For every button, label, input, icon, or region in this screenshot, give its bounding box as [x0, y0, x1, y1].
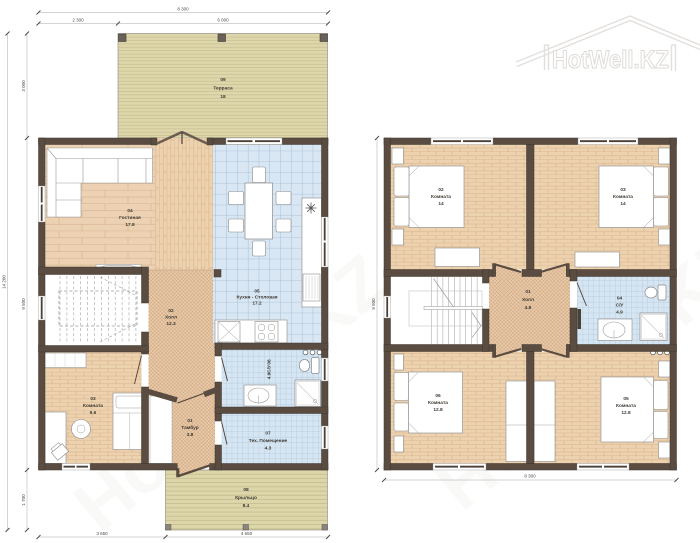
- svg-text:Комната: Комната: [83, 403, 103, 409]
- svg-text:05: 05: [623, 396, 629, 402]
- svg-text:06: 06: [435, 393, 441, 399]
- svg-text:Гостиная: Гостиная: [119, 215, 141, 221]
- svg-text:9 500: 9 500: [21, 298, 26, 310]
- svg-text:9.6: 9.6: [90, 410, 97, 416]
- svg-text:06: 06: [267, 359, 273, 365]
- svg-text:Терраса: Терраса: [213, 86, 233, 92]
- svg-text:Кухня - Столовая: Кухня - Столовая: [236, 295, 277, 301]
- svg-text:14: 14: [438, 201, 444, 207]
- svg-text:8 300: 8 300: [177, 7, 189, 12]
- svg-text:17.8: 17.8: [125, 222, 135, 228]
- svg-text:03: 03: [620, 187, 626, 193]
- svg-text:04: 04: [127, 208, 133, 214]
- svg-text:8.4: 8.4: [243, 503, 250, 509]
- svg-text:09: 09: [220, 77, 226, 83]
- svg-text:1 700: 1 700: [21, 494, 26, 506]
- svg-text:12.3: 12.3: [166, 321, 176, 327]
- svg-text:14 200: 14 200: [2, 275, 7, 289]
- svg-text:03: 03: [90, 396, 96, 402]
- svg-text:Комната: Комната: [431, 194, 451, 200]
- svg-text:4.9: 4.9: [616, 310, 623, 316]
- svg-text:07: 07: [265, 431, 271, 437]
- svg-text:4.8: 4.8: [525, 305, 532, 311]
- svg-text:12.8: 12.8: [621, 410, 631, 416]
- svg-text:02: 02: [438, 187, 444, 193]
- svg-text:3.8: 3.8: [187, 432, 194, 438]
- svg-text:Крыльцо: Крыльцо: [235, 495, 257, 501]
- svg-text:С/У: С/У: [267, 364, 273, 373]
- svg-text:18: 18: [220, 94, 226, 100]
- svg-text:05: 05: [254, 289, 260, 295]
- svg-text:01: 01: [525, 289, 531, 295]
- svg-text:4 650: 4 650: [241, 531, 253, 536]
- svg-text:9 500: 9 500: [371, 298, 376, 310]
- svg-text:04: 04: [617, 296, 623, 302]
- svg-text:4.9: 4.9: [267, 372, 273, 379]
- svg-text:02: 02: [168, 308, 174, 314]
- svg-text:Комната: Комната: [428, 400, 448, 406]
- svg-text:2 300: 2 300: [72, 18, 84, 23]
- svg-text:3 000: 3 000: [21, 80, 26, 92]
- svg-text:3 650: 3 650: [96, 531, 108, 536]
- svg-text:Комната: Комната: [616, 403, 636, 409]
- svg-text:Холл: Холл: [165, 315, 177, 321]
- svg-text:С/У: С/У: [616, 303, 625, 309]
- svg-text:17.2: 17.2: [252, 301, 262, 307]
- svg-text:08: 08: [243, 487, 249, 493]
- svg-text:Тех. Помещение: Тех. Помещение: [249, 438, 288, 444]
- svg-text:01: 01: [187, 418, 193, 424]
- svg-text:Комната: Комната: [613, 194, 633, 200]
- svg-text:Холл: Холл: [522, 297, 534, 303]
- svg-text:6 000: 6 000: [217, 18, 229, 23]
- svg-text:14: 14: [620, 201, 626, 207]
- svg-text:8 300: 8 300: [524, 474, 536, 479]
- svg-text:12.8: 12.8: [433, 407, 443, 413]
- svg-text:4.3: 4.3: [265, 446, 272, 452]
- svg-text:Тамбур: Тамбур: [181, 424, 198, 431]
- svg-text:HotWell.KZ: HotWell.KZ: [552, 46, 669, 74]
